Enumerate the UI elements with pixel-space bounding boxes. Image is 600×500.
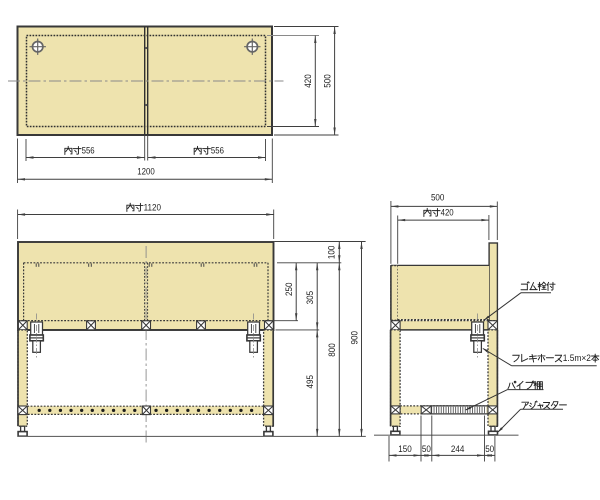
svg-text:150: 150 [398, 444, 412, 454]
svg-text:1.5m×2: 1.5m×2 [563, 353, 591, 363]
svg-text:100: 100 [327, 246, 337, 260]
svg-text:1120: 1120 [144, 202, 161, 212]
svg-text:250: 250 [284, 282, 294, 296]
svg-text:800: 800 [327, 343, 337, 357]
svg-text:50: 50 [485, 444, 494, 454]
svg-text:556: 556 [82, 146, 95, 156]
svg-text:420: 420 [303, 74, 313, 88]
svg-text:244: 244 [451, 444, 465, 454]
svg-text:556: 556 [211, 146, 224, 156]
svg-text:900: 900 [349, 331, 359, 345]
svg-text:500: 500 [431, 193, 445, 203]
svg-text:50: 50 [422, 444, 431, 454]
svg-text:495: 495 [305, 375, 315, 389]
svg-text:1200: 1200 [137, 167, 155, 177]
svg-text:305: 305 [305, 291, 315, 305]
svg-text:420: 420 [441, 208, 454, 218]
svg-text:500: 500 [322, 74, 332, 88]
